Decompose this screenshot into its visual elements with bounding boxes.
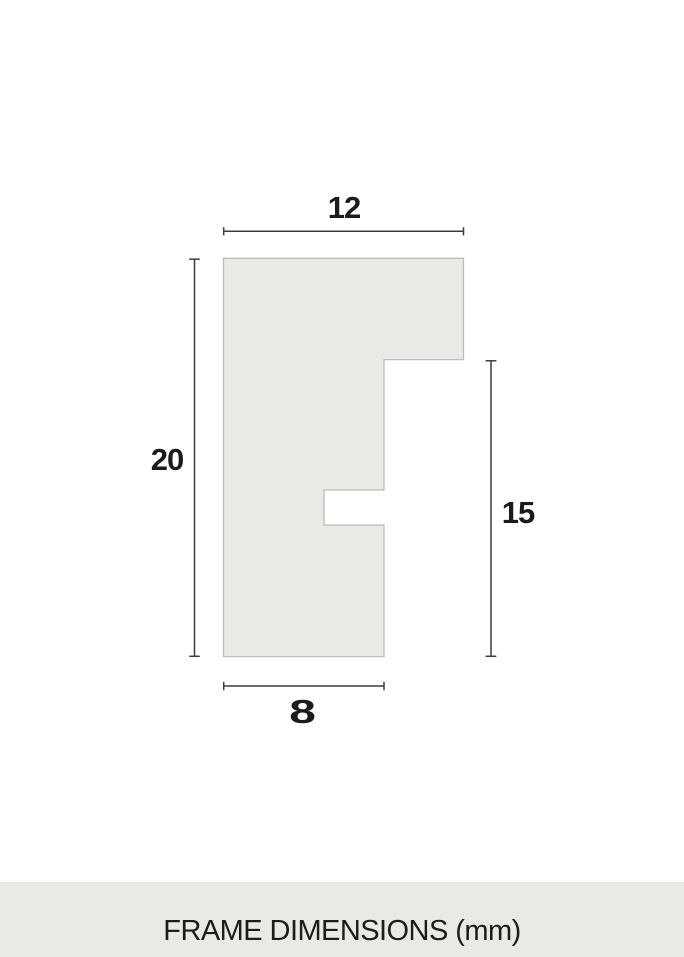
svg-text:8: 8 <box>289 693 316 730</box>
svg-text:12: 12 <box>328 190 360 225</box>
svg-text:15: 15 <box>502 495 535 530</box>
svg-text:20: 20 <box>151 442 183 477</box>
